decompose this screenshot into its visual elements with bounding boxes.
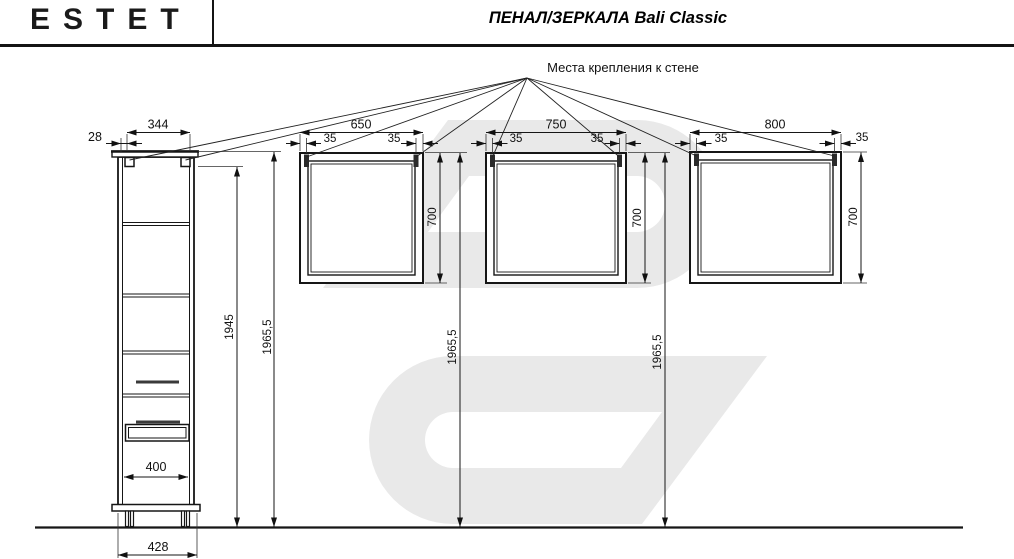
mirror-750-drawing bbox=[486, 153, 626, 283]
dim-cabinet-body-height: 1945 bbox=[224, 314, 236, 340]
dim-mirror-width: 750 bbox=[546, 118, 567, 132]
dim-bracket-offset: 35 bbox=[856, 132, 869, 144]
cabinet-base bbox=[112, 505, 200, 512]
drawer-handle-bottom bbox=[136, 421, 180, 424]
dim-bracket-offset: 35 bbox=[510, 133, 523, 145]
open-drawer bbox=[126, 425, 190, 442]
drawing-sheet: ESTET ПЕНАЛ/ЗЕРКАЛА Bali Classic bbox=[0, 0, 1014, 559]
dim-cabinet-inner-width: 400 bbox=[146, 460, 167, 474]
mirror-bracket bbox=[414, 155, 419, 168]
dim-mount-height: 1965,5 bbox=[652, 334, 664, 369]
dim-bracket-offset: 35 bbox=[388, 133, 401, 145]
dim-cabinet-base-width: 428 bbox=[148, 540, 169, 554]
dim-mirror-width: 800 bbox=[765, 118, 786, 132]
dim-bracket-offset: 35 bbox=[715, 133, 728, 145]
cabinet-bracket-left bbox=[125, 158, 134, 167]
cabinet-feet bbox=[126, 511, 190, 527]
dim-cabinet-total-height: 1965,5 bbox=[262, 319, 274, 354]
mirror-650-drawing bbox=[300, 153, 423, 283]
dim-bracket-offset: 35 bbox=[591, 133, 604, 145]
drawer-handle-top bbox=[136, 381, 179, 384]
technical-drawing-canvas: Места крепления к стене 344 bbox=[0, 0, 1014, 559]
dim-mount-height: 1965,5 bbox=[447, 329, 459, 364]
mounting-label: Места крепления к стене bbox=[547, 60, 699, 75]
dim-mirror-width: 650 bbox=[351, 118, 372, 132]
dim-cabinet-overhang: 28 bbox=[88, 130, 102, 144]
dim-mirror-height: 700 bbox=[848, 207, 860, 226]
dim-mirror-height: 700 bbox=[632, 208, 644, 227]
mirror-800-drawing bbox=[690, 152, 841, 283]
dim-mirror-height: 700 bbox=[427, 207, 439, 226]
mirror-bracket bbox=[617, 155, 622, 168]
dim-bracket-offset: 35 bbox=[324, 133, 337, 145]
dim-cabinet-top-width: 344 bbox=[148, 118, 169, 132]
